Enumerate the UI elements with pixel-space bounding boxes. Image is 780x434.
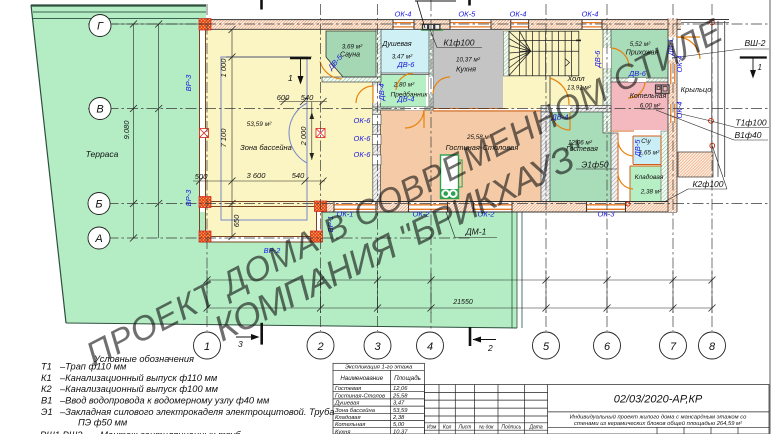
svg-text:Кладовая: Кладовая (335, 415, 361, 421)
svg-text:ОК-5: ОК-5 (458, 10, 476, 19)
svg-text:ОК-6: ОК-6 (354, 116, 372, 125)
svg-text:8: 8 (709, 341, 716, 353)
svg-text:ВР-3: ВР-3 (184, 189, 193, 207)
svg-text:ДВ-6: ДВ-6 (593, 50, 602, 69)
svg-text:К1ф100: К1ф100 (443, 38, 474, 48)
svg-text:Кухня: Кухня (456, 65, 476, 74)
svg-text:–Закладная силового электрокад: –Закладная силового электрокаделя электр… (59, 407, 335, 417)
svg-text:540: 540 (301, 93, 314, 102)
svg-text:5,00: 5,00 (393, 422, 405, 428)
svg-text:Терраса: Терраса (86, 149, 119, 159)
svg-text:РШ1 РШ2: РШ1 РШ2 (40, 430, 83, 434)
svg-text:Гостиная-Столов: Гостиная-Столов (335, 393, 385, 399)
svg-text:ДВ-4: ДВ-4 (397, 95, 415, 104)
svg-text:Зона бассейна: Зона бассейна (335, 407, 376, 414)
svg-text:ДВ-4: ДВ-4 (377, 84, 386, 102)
svg-text:В1: В1 (41, 396, 52, 406)
svg-text:Кладовая: Кладовая (635, 173, 664, 181)
svg-text:12,06: 12,06 (393, 386, 408, 392)
svg-text:Кухня: Кухня (335, 429, 350, 434)
svg-text:Изм: Изм (427, 424, 437, 430)
svg-text:540: 540 (292, 171, 305, 180)
svg-text:2,38: 2,38 (392, 415, 405, 421)
svg-text:7 100: 7 100 (219, 128, 228, 148)
svg-text:–Монтаж вентиляционных труб: –Монтаж вентиляционных труб (94, 430, 241, 434)
svg-text:53,59: 53,59 (393, 408, 408, 414)
svg-text:3 600: 3 600 (247, 171, 267, 180)
svg-text:К1: К1 (41, 373, 52, 383)
svg-text:Сауна: Сауна (340, 52, 360, 59)
svg-text:9.080: 9.080 (122, 120, 131, 140)
svg-text:Г: Г (97, 21, 104, 33)
svg-text:Гостевая: Гостевая (335, 386, 361, 392)
svg-text:ОК-4: ОК-4 (395, 10, 412, 19)
svg-text:ОК-6: ОК-6 (354, 134, 372, 143)
svg-text:02/03/2020-АР,КР: 02/03/2020-АР,КР (614, 394, 703, 406)
svg-text:№ док: № док (479, 424, 494, 430)
svg-text:500: 500 (195, 172, 208, 181)
svg-text:1: 1 (288, 73, 293, 83)
svg-text:–Канализационный выпуск ф100 м: –Канализационный выпуск ф100 мм (59, 384, 219, 394)
svg-text:Лист: Лист (457, 424, 471, 430)
svg-text:Кол: Кол (443, 424, 452, 430)
svg-text:ОК-3: ОК-3 (598, 210, 616, 219)
svg-text:2: 2 (316, 341, 323, 353)
svg-text:Подпись: Подпись (501, 424, 521, 430)
svg-text:1: 1 (204, 341, 210, 353)
svg-text:ОК-4: ОК-4 (582, 10, 599, 19)
svg-text:3: 3 (374, 341, 381, 353)
svg-text:Т1: Т1 (41, 362, 52, 372)
svg-text:–Канализационный выпуск ф110 м: –Канализационный выпуск ф110 мм (59, 373, 218, 383)
svg-text:Б: Б (95, 199, 102, 211)
svg-text:Площадь: Площадь (394, 375, 421, 382)
svg-text:2,80 м²: 2,80 м² (393, 82, 415, 89)
svg-text:7: 7 (670, 341, 677, 353)
svg-text:Экспликация 1-го этажа: Экспликация 1-го этажа (345, 365, 413, 371)
svg-text:ПЭ ф50 мм: ПЭ ф50 мм (78, 418, 128, 428)
svg-text:650: 650 (232, 214, 241, 227)
svg-text:3,69 м²: 3,69 м² (342, 44, 363, 51)
svg-text:В1ф40: В1ф40 (735, 130, 762, 140)
svg-text:2,38 м²: 2,38 м² (640, 189, 662, 196)
svg-text:К2ф100: К2ф100 (692, 179, 723, 189)
svg-text:ОК-6: ОК-6 (354, 150, 372, 159)
svg-text:С\у: С\у (641, 138, 652, 145)
svg-text:ДВ-6: ДВ-6 (397, 60, 416, 69)
svg-text:10,37 м²: 10,37 м² (456, 57, 481, 64)
svg-text:Т1ф100: Т1ф100 (735, 118, 766, 128)
svg-text:Крыльцо: Крыльцо (681, 85, 712, 94)
svg-text:ДВ-5: ДВ-5 (633, 139, 642, 158)
svg-text:ВР-3: ВР-3 (184, 74, 193, 92)
svg-text:Индивидуальный проект жилого: Индивидуальный проект жилого дома с манс… (570, 414, 748, 421)
svg-text:–Ввод водопровода к водомерном: –Ввод водопровода к водомерному узлу ф40… (59, 396, 270, 406)
svg-text:1: 1 (758, 63, 762, 72)
svg-text:К2: К2 (41, 384, 52, 394)
svg-text:5: 5 (543, 341, 550, 353)
svg-text:ВШ-2: ВШ-2 (744, 38, 765, 48)
svg-text:2: 2 (487, 343, 493, 353)
svg-text:А: А (94, 233, 102, 245)
svg-text:Котельная: Котельная (335, 422, 365, 428)
svg-text:600: 600 (277, 93, 290, 102)
svg-text:Душевая: Душевая (381, 41, 412, 48)
svg-text:10,37: 10,37 (393, 429, 408, 434)
svg-text:4: 4 (427, 341, 433, 353)
svg-text:ОК-4: ОК-4 (675, 102, 684, 119)
svg-text:1 000: 1 000 (219, 58, 228, 78)
svg-text:53,59 м²: 53,59 м² (247, 121, 273, 128)
svg-text:–Трап ф110 мм: –Трап ф110 мм (59, 362, 127, 372)
svg-text:3,47: 3,47 (393, 401, 405, 407)
svg-text:стенами из керамических блоко: стенами из керамических блоков общей пло… (574, 420, 743, 427)
svg-text:Душевая: Душевая (334, 401, 359, 407)
svg-text:6.00 м²: 6.00 м² (640, 103, 661, 110)
svg-text:ОК-4: ОК-4 (510, 10, 527, 19)
svg-text:21550: 21550 (452, 299, 473, 306)
svg-text:В: В (96, 104, 103, 116)
svg-text:Дата: Дата (528, 424, 542, 430)
svg-text:Наименование: Наименование (340, 375, 383, 382)
svg-text:2 000: 2 000 (299, 126, 308, 147)
svg-text:Э1: Э1 (41, 407, 53, 417)
svg-text:Зона бассейна: Зона бассейна (240, 143, 292, 152)
svg-text:25,58: 25,58 (392, 393, 408, 399)
svg-text:6: 6 (604, 341, 611, 353)
